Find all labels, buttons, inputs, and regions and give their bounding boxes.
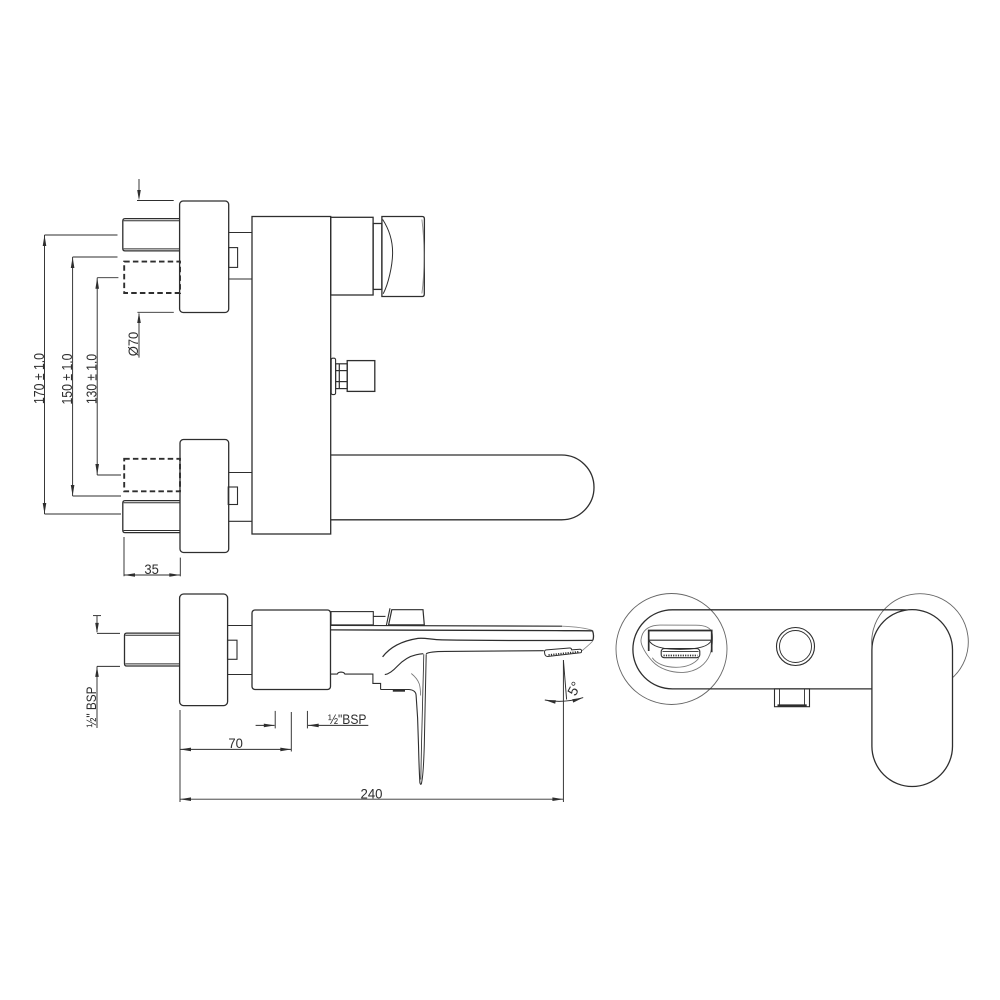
svg-text:½" BSP: ½" BSP: [83, 687, 99, 728]
svg-text:150 ± 1.0: 150 ± 1.0: [59, 354, 76, 405]
svg-text:70: 70: [228, 736, 243, 751]
svg-text:170 ± 1.0: 170 ± 1.0: [31, 353, 48, 404]
svg-text:½"BSP: ½"BSP: [328, 711, 367, 727]
svg-text:Ø70: Ø70: [125, 332, 141, 357]
svg-text:35: 35: [144, 561, 159, 577]
svg-text:130 ± 1.0: 130 ± 1.0: [84, 354, 101, 404]
svg-text:240: 240: [361, 786, 383, 802]
